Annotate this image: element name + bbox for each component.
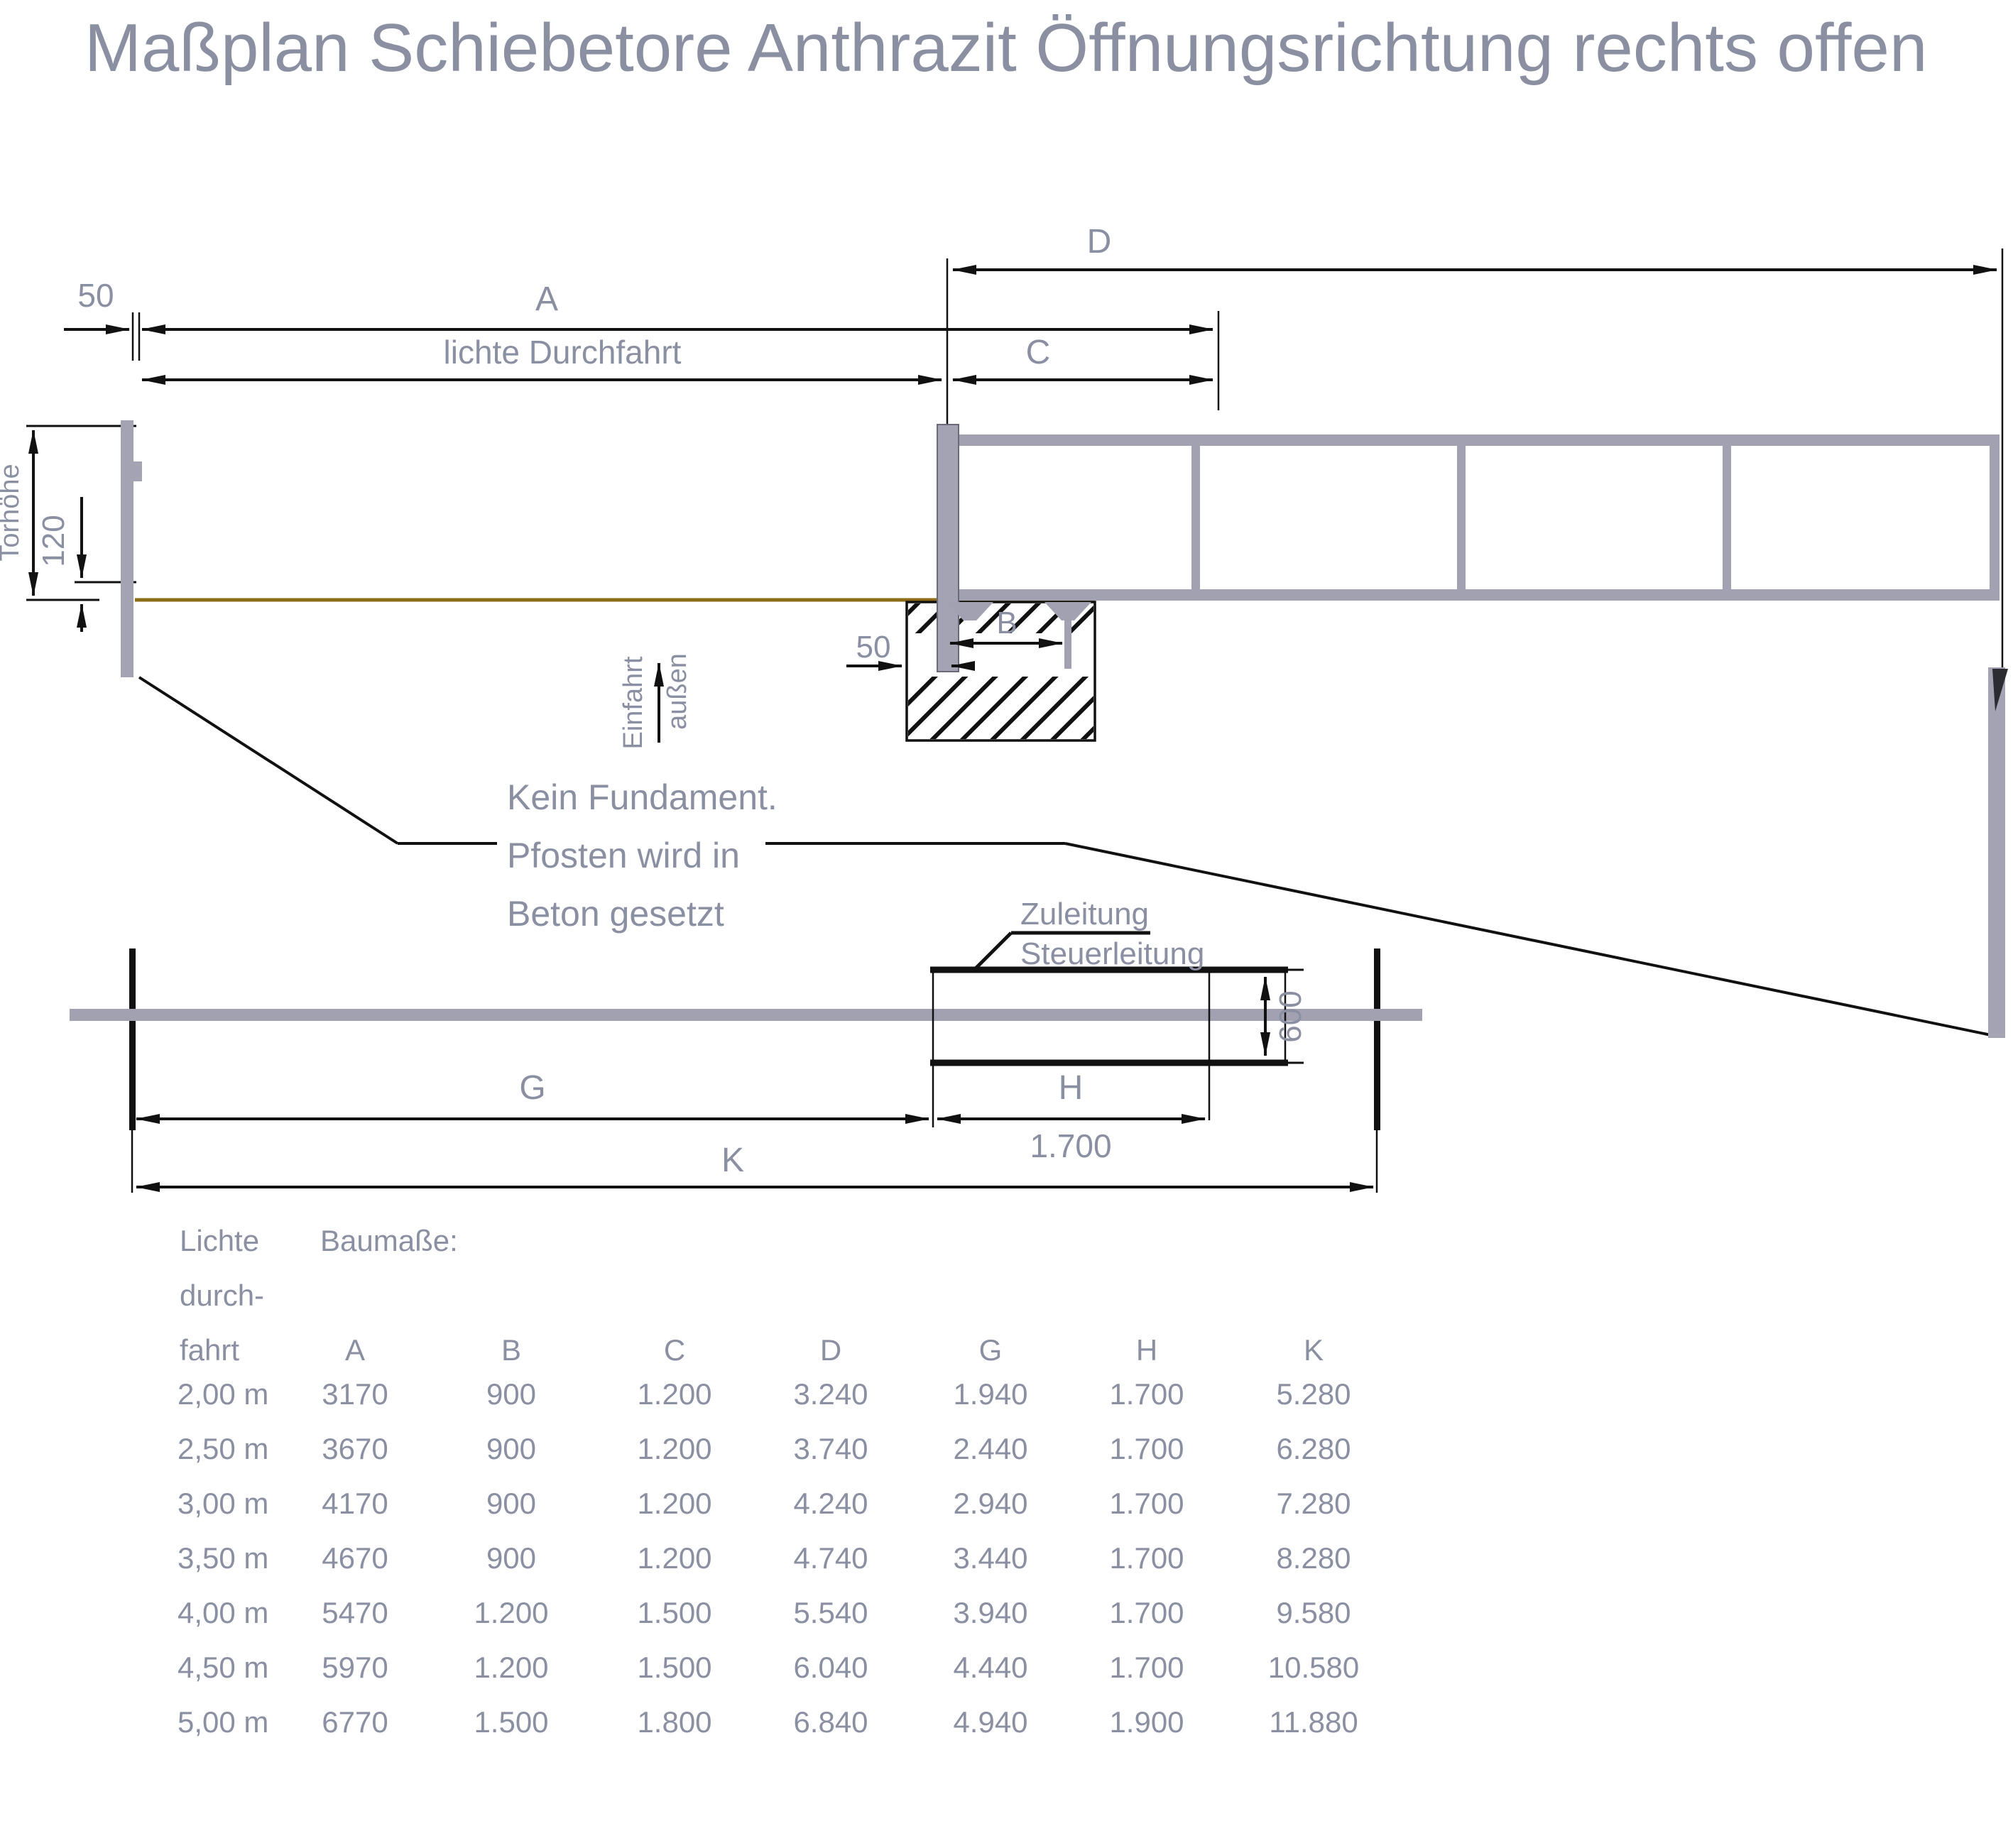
table-cell: 1.700 (1109, 1596, 1184, 1629)
table-cell: 1.500 (637, 1596, 711, 1629)
table-row: 2,50 m 3670 900 1.200 3.740 2.440 1.700 … (178, 1432, 1351, 1465)
table-row: 3,00 m 4170 900 1.200 4.240 2.940 1.700 … (178, 1487, 1351, 1520)
column-header: K (1304, 1333, 1324, 1367)
dimension-50-bottom-label: 50 (856, 630, 891, 665)
gate-height-label: Torhöhe (0, 464, 25, 561)
column-header: H (1136, 1333, 1157, 1367)
table-cell: 2,50 m (178, 1432, 268, 1465)
dimension-50-top-label: 50 (77, 277, 114, 314)
table-cell: 1.200 (637, 1377, 711, 1411)
note-leader-line (139, 677, 398, 843)
table-cell: 4670 (322, 1541, 388, 1575)
table-cell: 1.700 (1109, 1651, 1184, 1684)
table-cell: 6.280 (1276, 1432, 1351, 1465)
table-cell: 1.200 (474, 1596, 548, 1629)
clear-passage-label: lichte Durchfahrt (444, 334, 682, 371)
gate-front-member (937, 425, 959, 672)
table-title: Baumaße: (320, 1224, 458, 1257)
table-cell: 5470 (322, 1596, 388, 1629)
cable-annotation: Zuleitung Steuerleitung (974, 897, 1204, 971)
dimension-D-label: D (1087, 223, 1112, 261)
plan-left-post (129, 948, 136, 1130)
column-header: C (664, 1333, 685, 1367)
table-cell: 3,50 m (178, 1541, 268, 1575)
table-cell: 3.440 (953, 1541, 1027, 1575)
table-column-headers: A B C D G H K (345, 1333, 1324, 1367)
gate-bottom-rail (940, 589, 2000, 601)
supply-line-label: Zuleitung (1020, 897, 1149, 931)
foundation-hatch-lower (908, 677, 1093, 739)
table-cell: 4.740 (793, 1541, 868, 1575)
table-cell: 1.200 (637, 1541, 711, 1575)
left-post (121, 420, 133, 677)
dimension-G: G (136, 1069, 929, 1119)
dimension-B-label: B (996, 606, 1017, 640)
dimension-K-label: K (721, 1142, 744, 1179)
table-cell: 900 (486, 1541, 536, 1575)
gate-upright (1191, 446, 1200, 589)
cable-leader-line (974, 933, 1011, 970)
table-cell: 1.200 (474, 1651, 548, 1684)
table-cell: 1.940 (953, 1377, 1027, 1411)
sliding-gate (937, 425, 2000, 672)
table-cell: 3.240 (793, 1377, 868, 1411)
table-cell: 4.940 (953, 1705, 1027, 1739)
table-cell: 1.700 (1109, 1487, 1184, 1520)
table-cell: 3670 (322, 1432, 388, 1465)
table-cell: 5,00 m (178, 1705, 268, 1739)
table-row-header-line1: Lichte (180, 1224, 259, 1257)
table-cell: 5.540 (793, 1596, 868, 1629)
table-cell: 2.940 (953, 1487, 1027, 1520)
outside-label: außen (662, 653, 692, 730)
note-line-1: Kein Fundament. (507, 777, 778, 817)
side-view: Torhöhe 120 50 A lichte Durchfahrt (0, 223, 2008, 1038)
measurement-plan-drawing: Maßplan Schiebetore Anthrazit Öffnungsri… (0, 0, 2013, 1844)
table-cell: 4170 (322, 1487, 388, 1520)
dimension-D: D (947, 223, 2002, 672)
table-cell: 2.440 (953, 1432, 1027, 1465)
dimension-120-label: 120 (36, 515, 71, 567)
dimension-H-label: H (1059, 1069, 1084, 1107)
dimension-C-label: C (1026, 334, 1051, 371)
note-line-2: Pfosten wird in (507, 836, 740, 875)
dimension-H: H 1.700 (937, 1069, 1205, 1164)
table-cell: 1.900 (1109, 1705, 1184, 1739)
table-cell: 3.740 (793, 1432, 868, 1465)
table-cell: 7.280 (1276, 1487, 1351, 1520)
table-cell: 3,00 m (178, 1487, 268, 1520)
column-header: G (979, 1333, 1003, 1367)
table-cell: 4,00 m (178, 1596, 268, 1629)
table-cell: 1.700 (1109, 1377, 1184, 1411)
table-cell: 2,00 m (178, 1377, 268, 1411)
control-line-label: Steuerleitung (1020, 936, 1204, 971)
table-row: 3,50 m 4670 900 1.200 4.740 3.440 1.700 … (178, 1541, 1351, 1575)
dimension-table: Lichte durch- fahrt Baumaße: A B C D G H… (178, 1224, 1359, 1739)
table-cell: 6.040 (793, 1651, 868, 1684)
column-header: D (820, 1333, 841, 1367)
entry-direction-annotation: Einfahrt außen (618, 653, 692, 749)
table-cell: 4,50 m (178, 1651, 268, 1684)
table-cell: 9.580 (1276, 1596, 1351, 1629)
table-cell: 4.240 (793, 1487, 868, 1520)
plan-gate-bar (70, 1009, 1422, 1021)
table-cell: 3170 (322, 1377, 388, 1411)
dimension-1700-label: 1.700 (1030, 1127, 1111, 1164)
gate-carriage-stem (1064, 602, 1071, 669)
column-header: A (345, 1333, 365, 1367)
plan-view: 600 Zuleitung Steuerleitung G H 1.700 K (70, 897, 1422, 1193)
table-cell: 5970 (322, 1651, 388, 1684)
dimension-600-label: 600 (1273, 990, 1308, 1042)
table-row-header-line3: fahrt (180, 1333, 239, 1367)
table-cell: 11.880 (1269, 1705, 1358, 1739)
table-cell: 6770 (322, 1705, 388, 1739)
table-cell: 1.800 (637, 1705, 711, 1739)
table-cell: 1.700 (1109, 1432, 1184, 1465)
gate-upright (1723, 446, 1731, 589)
dimension-50-top: 50 (64, 277, 139, 361)
gate-height-dimension: Torhöhe (0, 426, 136, 600)
table-row: 4,00 m 5470 1.200 1.500 5.540 3.940 1.70… (178, 1596, 1351, 1629)
dimension-G-label: G (519, 1069, 545, 1107)
drive-zone (930, 970, 1304, 1127)
table-cell: 1.500 (637, 1651, 711, 1684)
table-cell: 8.280 (1276, 1541, 1351, 1575)
plan-right-post (1374, 948, 1380, 1130)
dimension-K: K (136, 1142, 1373, 1187)
table-row: 4,50 m 5970 1.200 1.500 6.040 4.440 1.70… (178, 1651, 1359, 1684)
dimension-clear-passage: lichte Durchfahrt (142, 334, 942, 380)
table-cell: 900 (486, 1377, 536, 1411)
gate-end-upright (1990, 434, 2000, 601)
table-cell: 5.280 (1276, 1377, 1351, 1411)
dimension-A: A (142, 280, 1213, 329)
table-cell: 1.500 (474, 1705, 548, 1739)
table-cell: 900 (486, 1432, 536, 1465)
table-cell: 4.440 (953, 1651, 1027, 1684)
table-cell: 1.200 (637, 1432, 711, 1465)
table-row-header-line2: durch- (180, 1279, 264, 1312)
dimension-A-label: A (535, 280, 558, 318)
table-cell: 1.200 (637, 1487, 711, 1520)
page-title: Maßplan Schiebetore Anthrazit Öffnungsri… (84, 10, 1927, 86)
gate-top-rail (940, 434, 2000, 446)
right-post (1988, 667, 2005, 1038)
entry-label: Einfahrt (618, 656, 648, 749)
table-cell: 10.580 (1268, 1651, 1359, 1684)
table-row: 2,00 m 3170 900 1.200 3.240 1.940 1.700 … (178, 1377, 1351, 1411)
table-cell: 6.840 (793, 1705, 868, 1739)
left-post-latch (133, 461, 142, 481)
note-line-3: Beton gesetzt (507, 894, 724, 934)
table-cell: 900 (486, 1487, 536, 1520)
table-cell: 1.700 (1109, 1541, 1184, 1575)
column-header: B (501, 1333, 521, 1367)
dimension-C: C (953, 311, 1218, 410)
gate-upright (1457, 446, 1466, 589)
table-row: 5,00 m 6770 1.500 1.800 6.840 4.940 1.90… (178, 1705, 1358, 1739)
table-cell: 3.940 (953, 1596, 1027, 1629)
